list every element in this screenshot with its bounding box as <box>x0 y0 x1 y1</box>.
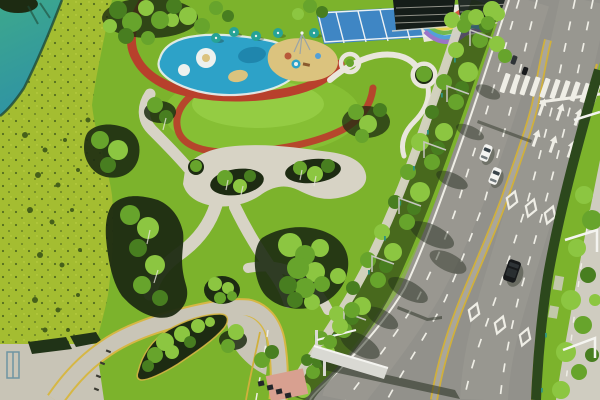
aerial-park-road-photo <box>0 0 600 400</box>
play-equipment-red <box>285 53 292 60</box>
pool-white-island-2 <box>178 64 190 76</box>
plaza-ring-small-center <box>346 59 354 67</box>
aerial-scene <box>0 0 600 400</box>
pool-island-center <box>202 54 210 62</box>
play-equipment-blue <box>315 53 321 59</box>
wading-ring-center <box>294 62 298 66</box>
